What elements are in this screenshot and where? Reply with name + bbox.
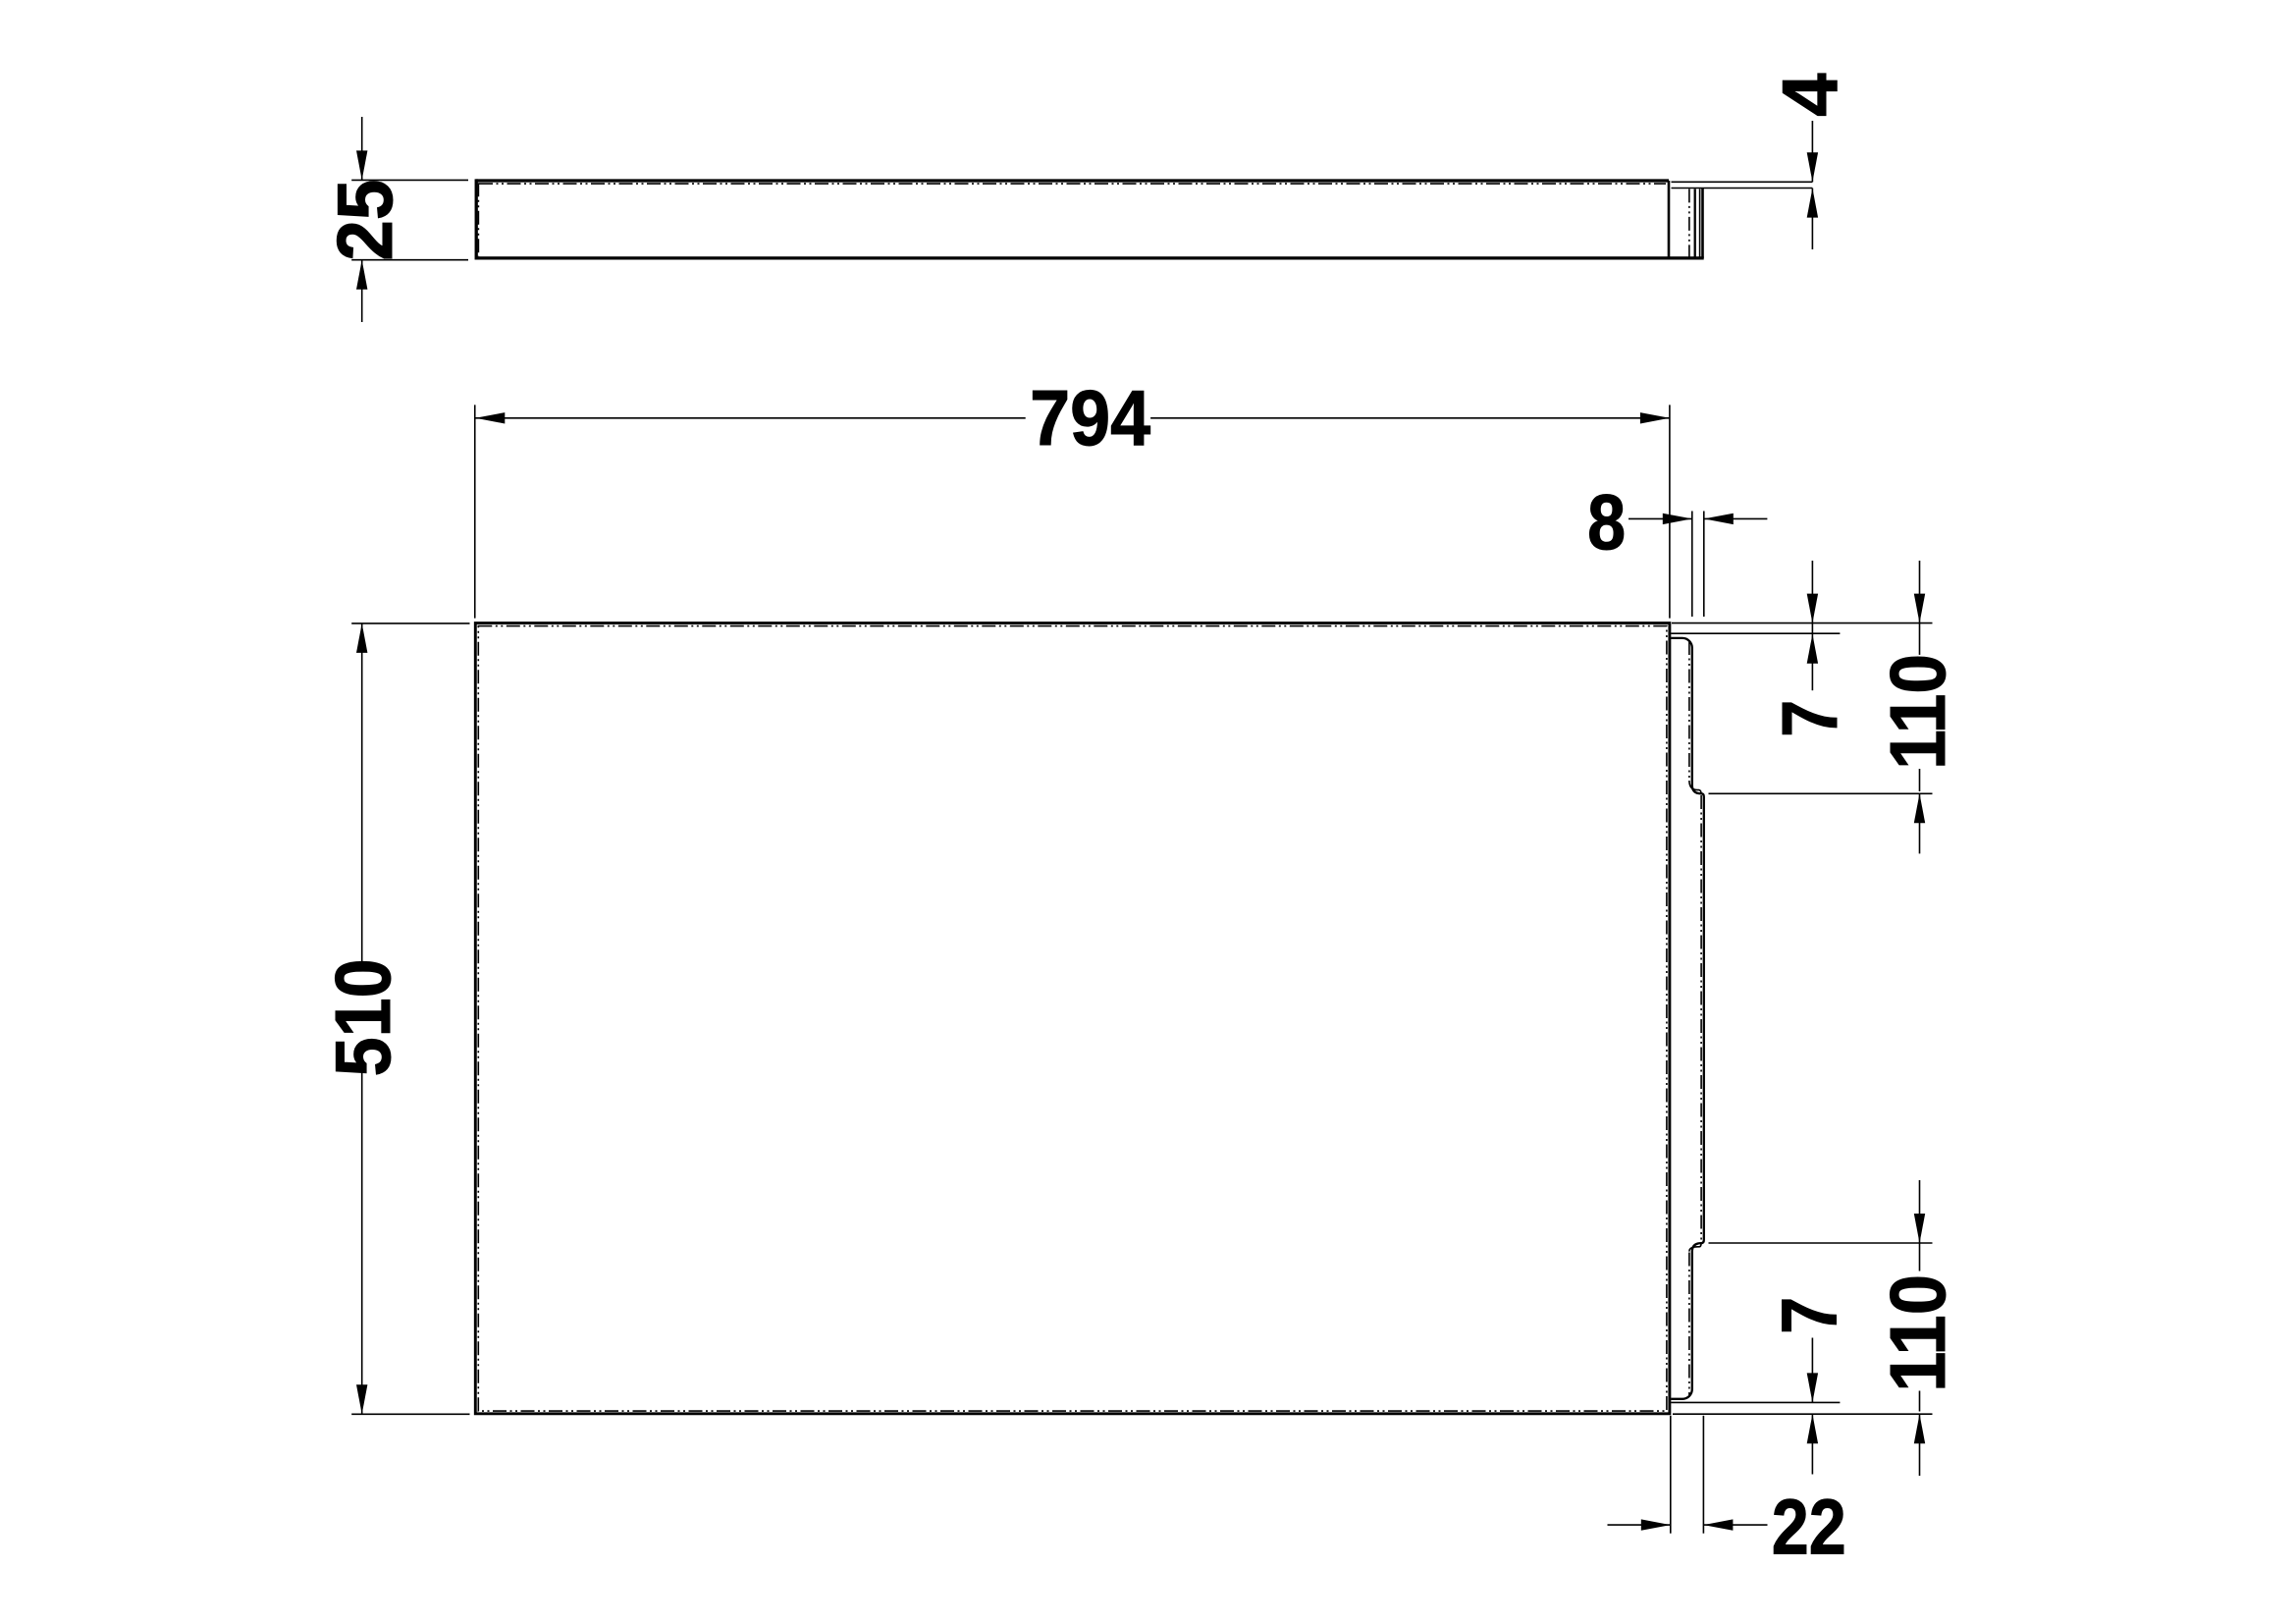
svg-text:4: 4 [1766,73,1853,117]
svg-text:22: 22 [1772,1483,1846,1570]
svg-text:110: 110 [1874,654,1961,770]
svg-text:25: 25 [321,180,408,261]
svg-text:7: 7 [1766,700,1853,737]
svg-text:510: 510 [319,958,406,1076]
svg-text:7: 7 [1766,1297,1853,1334]
svg-text:110: 110 [1874,1274,1961,1392]
svg-text:794: 794 [1030,374,1150,461]
svg-text:8: 8 [1587,478,1626,566]
